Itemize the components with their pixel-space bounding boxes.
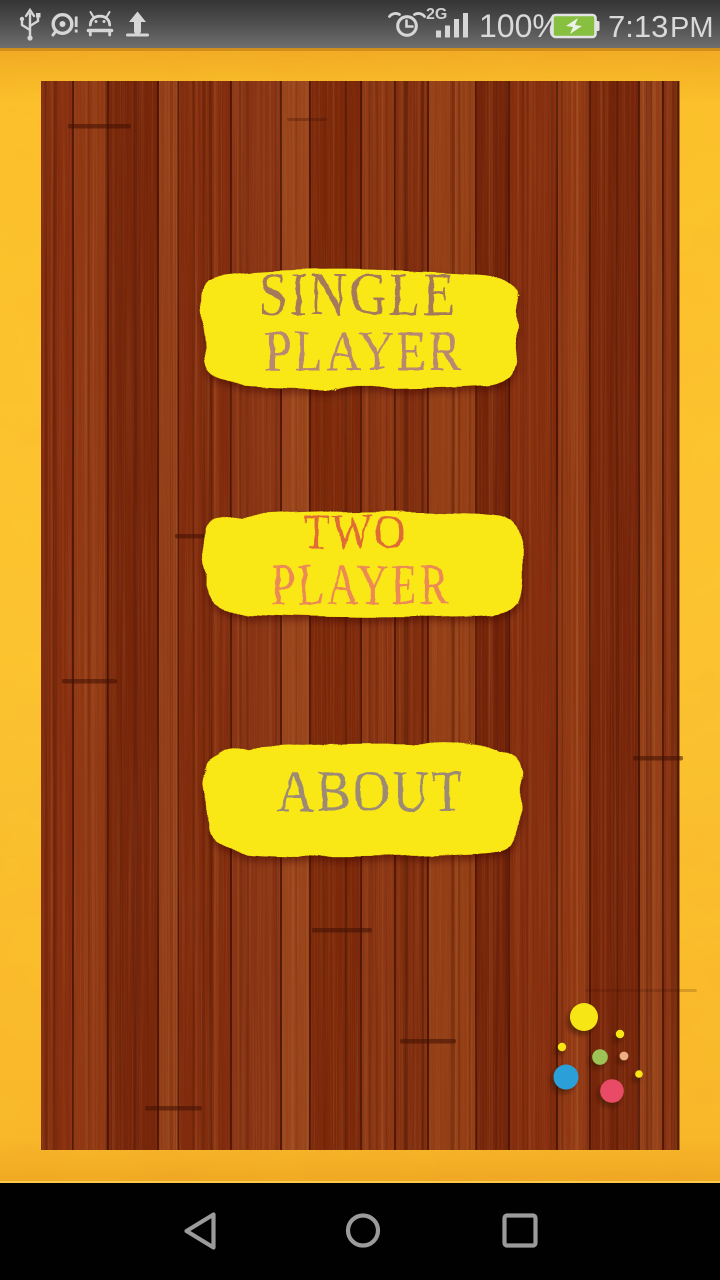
svg-text:PM: PM	[670, 12, 714, 44]
svg-text:2G: 2G	[426, 6, 447, 23]
svg-text:TWO: TWO	[303, 502, 406, 558]
svg-text:100%: 100%	[479, 8, 561, 44]
svg-text:SINGLE: SINGLE	[258, 260, 456, 328]
svg-text:7:13: 7:13	[608, 9, 668, 44]
svg-text:ABOUT: ABOUT	[276, 757, 464, 823]
svg-text:PLAYER: PLAYER	[270, 551, 450, 616]
svg-text:PLAYER: PLAYER	[264, 319, 463, 382]
